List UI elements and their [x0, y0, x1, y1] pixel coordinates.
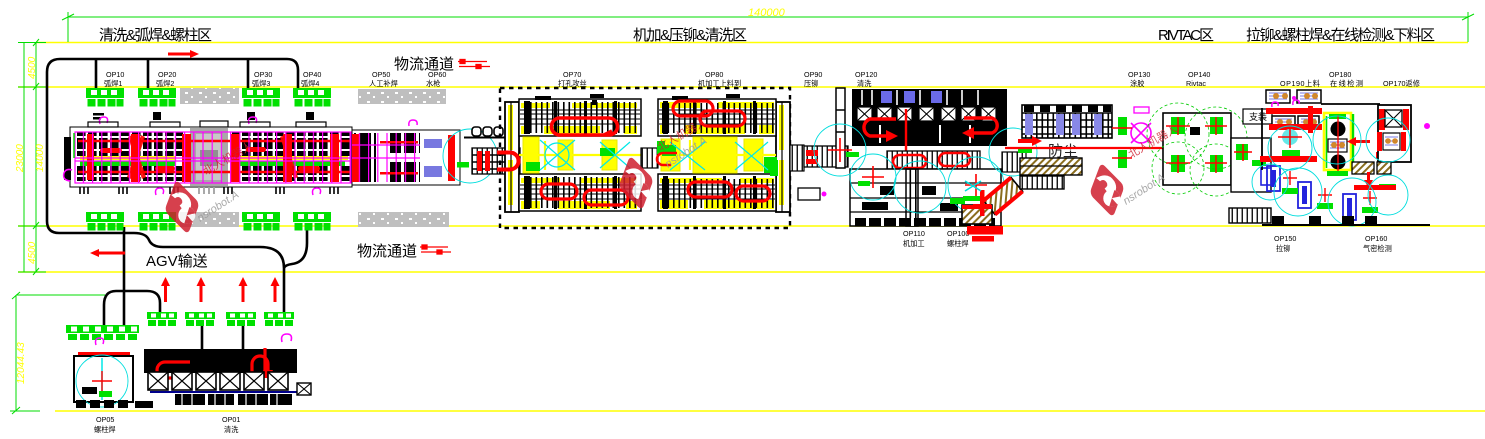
svg-text:弧焊3: 弧焊3: [252, 79, 270, 88]
svg-text:气密检测: 气密检测: [1363, 244, 1392, 253]
svg-text:弧焊2: 弧焊2: [156, 79, 174, 88]
svg-text:4500: 4500: [27, 56, 38, 79]
svg-text:支装: 支装: [1249, 111, 1267, 122]
svg-text:清洗: 清洗: [857, 79, 871, 88]
svg-text:OP05: OP05: [96, 415, 114, 424]
svg-text:OP10: OP10: [106, 70, 124, 79]
svg-text:OP170返修: OP170返修: [1383, 79, 1420, 88]
svg-text:拉铆&螺柱焊&在线检测&下料区: 拉铆&螺柱焊&在线检测&下料区: [1246, 27, 1435, 44]
svg-text:OP90: OP90: [804, 70, 822, 79]
svg-text:在线检测: 在线检测: [1330, 79, 1363, 88]
svg-text:物流通道: 物流通道: [357, 243, 417, 260]
svg-text:机加工上料到: 机加工上料到: [698, 79, 741, 88]
svg-text:螺柱焊: 螺柱焊: [947, 239, 969, 248]
svg-text:打孔攻丝: 打孔攻丝: [558, 79, 587, 88]
svg-text:OP180: OP180: [1329, 70, 1351, 79]
svg-text:OP50: OP50: [372, 70, 390, 79]
svg-text:涂胶: 涂胶: [1130, 79, 1144, 88]
svg-text:23000: 23000: [15, 144, 26, 173]
svg-text:OP40: OP40: [303, 70, 321, 79]
svg-text:OP150: OP150: [1274, 234, 1296, 243]
svg-text:清洗&弧焊&螺柱区: 清洗&弧焊&螺柱区: [99, 27, 212, 44]
svg-text:Rivtac: Rivtac: [1186, 79, 1206, 88]
svg-text:4500: 4500: [27, 241, 38, 264]
svg-text:压铆: 压铆: [804, 79, 818, 88]
svg-text:OP100: OP100: [947, 229, 969, 238]
svg-text:140000: 140000: [748, 7, 786, 19]
svg-text:拉铆: 拉铆: [1276, 244, 1290, 253]
svg-text:人工补焊: 人工补焊: [369, 79, 398, 88]
svg-text:OP20: OP20: [158, 70, 176, 79]
svg-text:OP110: OP110: [903, 229, 925, 238]
svg-text:机加&压铆&清洗区: 机加&压铆&清洗区: [633, 27, 747, 44]
svg-text:14000: 14000: [35, 144, 46, 172]
svg-text:机加工: 机加工: [903, 239, 925, 248]
svg-text:OP190上料: OP190上料: [1280, 79, 1320, 88]
svg-text:OP30: OP30: [254, 70, 272, 79]
svg-text:水枪: 水枪: [426, 79, 440, 88]
svg-text:弧焊1: 弧焊1: [104, 79, 122, 88]
svg-text:弧焊4: 弧焊4: [301, 79, 319, 88]
svg-text:AGV输送: AGV输送: [146, 253, 208, 270]
svg-text:OP60: OP60: [428, 70, 446, 79]
svg-text:OP160: OP160: [1365, 234, 1387, 243]
svg-text:OP01: OP01: [222, 415, 240, 424]
svg-text:OP130: OP130: [1128, 70, 1150, 79]
svg-text:OP120: OP120: [855, 70, 877, 79]
svg-text:OP80: OP80: [705, 70, 723, 79]
svg-text:12044.43: 12044.43: [16, 342, 27, 384]
svg-text:螺柱焊: 螺柱焊: [94, 425, 116, 434]
svg-text:RIVTAC区: RIVTAC区: [1158, 27, 1214, 44]
svg-text:清洗: 清洗: [224, 425, 238, 434]
svg-text:OP140: OP140: [1188, 70, 1210, 79]
svg-text:OP70: OP70: [563, 70, 581, 79]
